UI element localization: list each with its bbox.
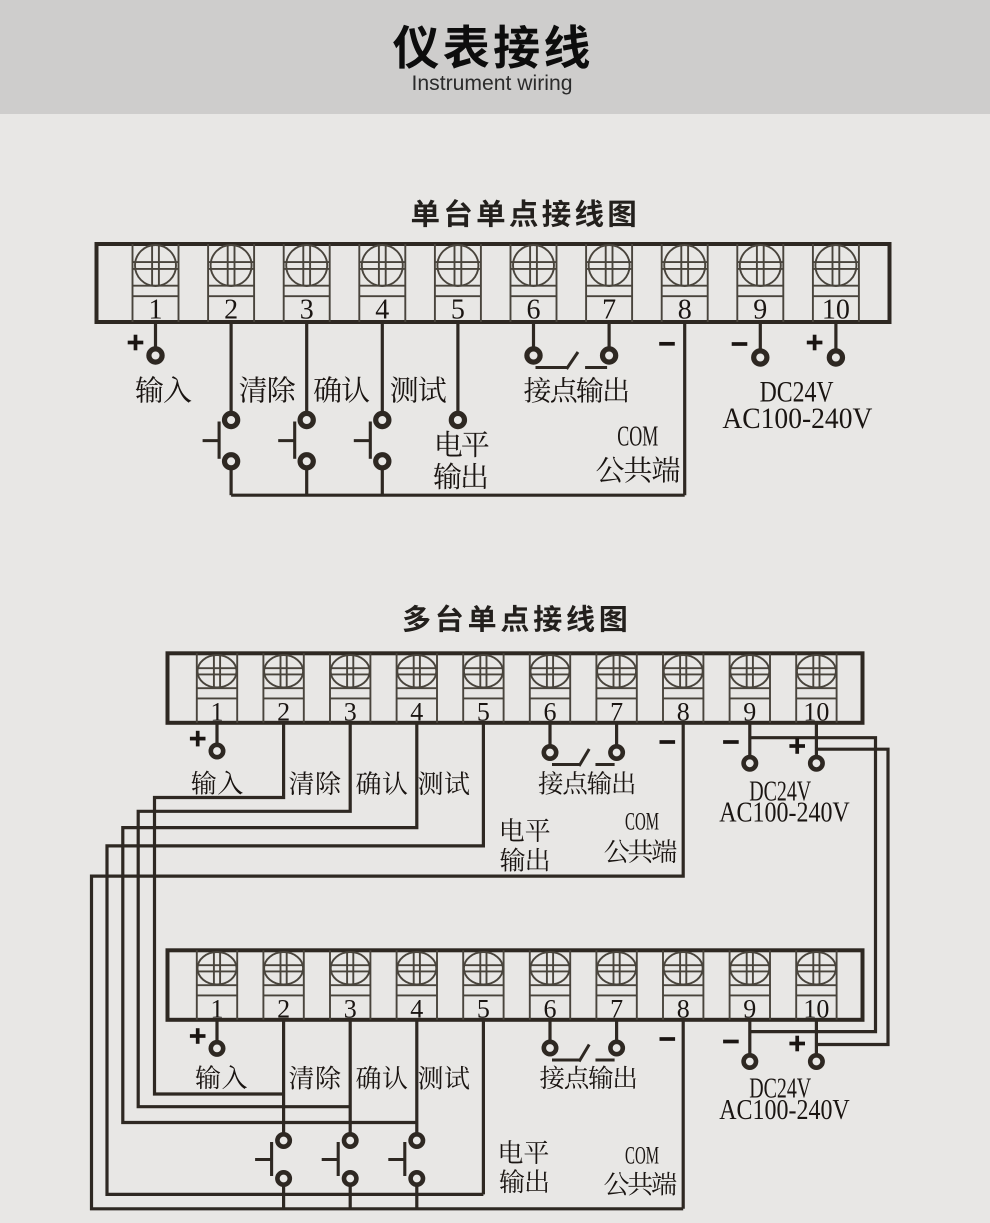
svg-text:10: 10 [822,295,850,326]
svg-text:3: 3 [300,295,314,326]
svg-text:2: 2 [224,295,238,326]
svg-text:5: 5 [477,698,490,727]
svg-text:2: 2 [277,995,290,1024]
svg-text:AC100-240V: AC100-240V [719,798,850,829]
svg-text:AC100-240V: AC100-240V [722,402,872,435]
svg-text:3: 3 [344,995,357,1024]
svg-text:7: 7 [602,295,616,326]
svg-text:8: 8 [678,295,692,326]
svg-text:5: 5 [451,295,465,326]
svg-text:Instrument wiring: Instrument wiring [412,71,573,95]
svg-text:9: 9 [743,698,756,727]
svg-text:9: 9 [743,995,756,1024]
svg-text:7: 7 [610,995,623,1024]
svg-text:COM: COM [617,421,658,453]
svg-text:AC100-240V: AC100-240V [719,1095,850,1126]
svg-text:1: 1 [211,995,224,1024]
svg-text:2: 2 [277,698,290,727]
svg-text:6: 6 [544,995,557,1024]
svg-text:10: 10 [803,995,829,1024]
svg-text:COM: COM [625,807,659,836]
svg-text:4: 4 [410,698,423,727]
svg-text:1: 1 [149,295,163,326]
svg-text:3: 3 [344,698,357,727]
svg-text:5: 5 [477,995,490,1024]
svg-text:8: 8 [677,698,690,727]
svg-text:10: 10 [803,698,829,727]
svg-text:7: 7 [610,698,623,727]
svg-text:4: 4 [375,295,389,326]
svg-text:4: 4 [410,995,423,1024]
svg-text:6: 6 [527,295,541,326]
svg-text:8: 8 [677,995,690,1024]
svg-text:COM: COM [625,1141,659,1170]
svg-text:6: 6 [544,698,557,727]
svg-text:9: 9 [753,295,767,326]
svg-text:1: 1 [211,698,224,727]
